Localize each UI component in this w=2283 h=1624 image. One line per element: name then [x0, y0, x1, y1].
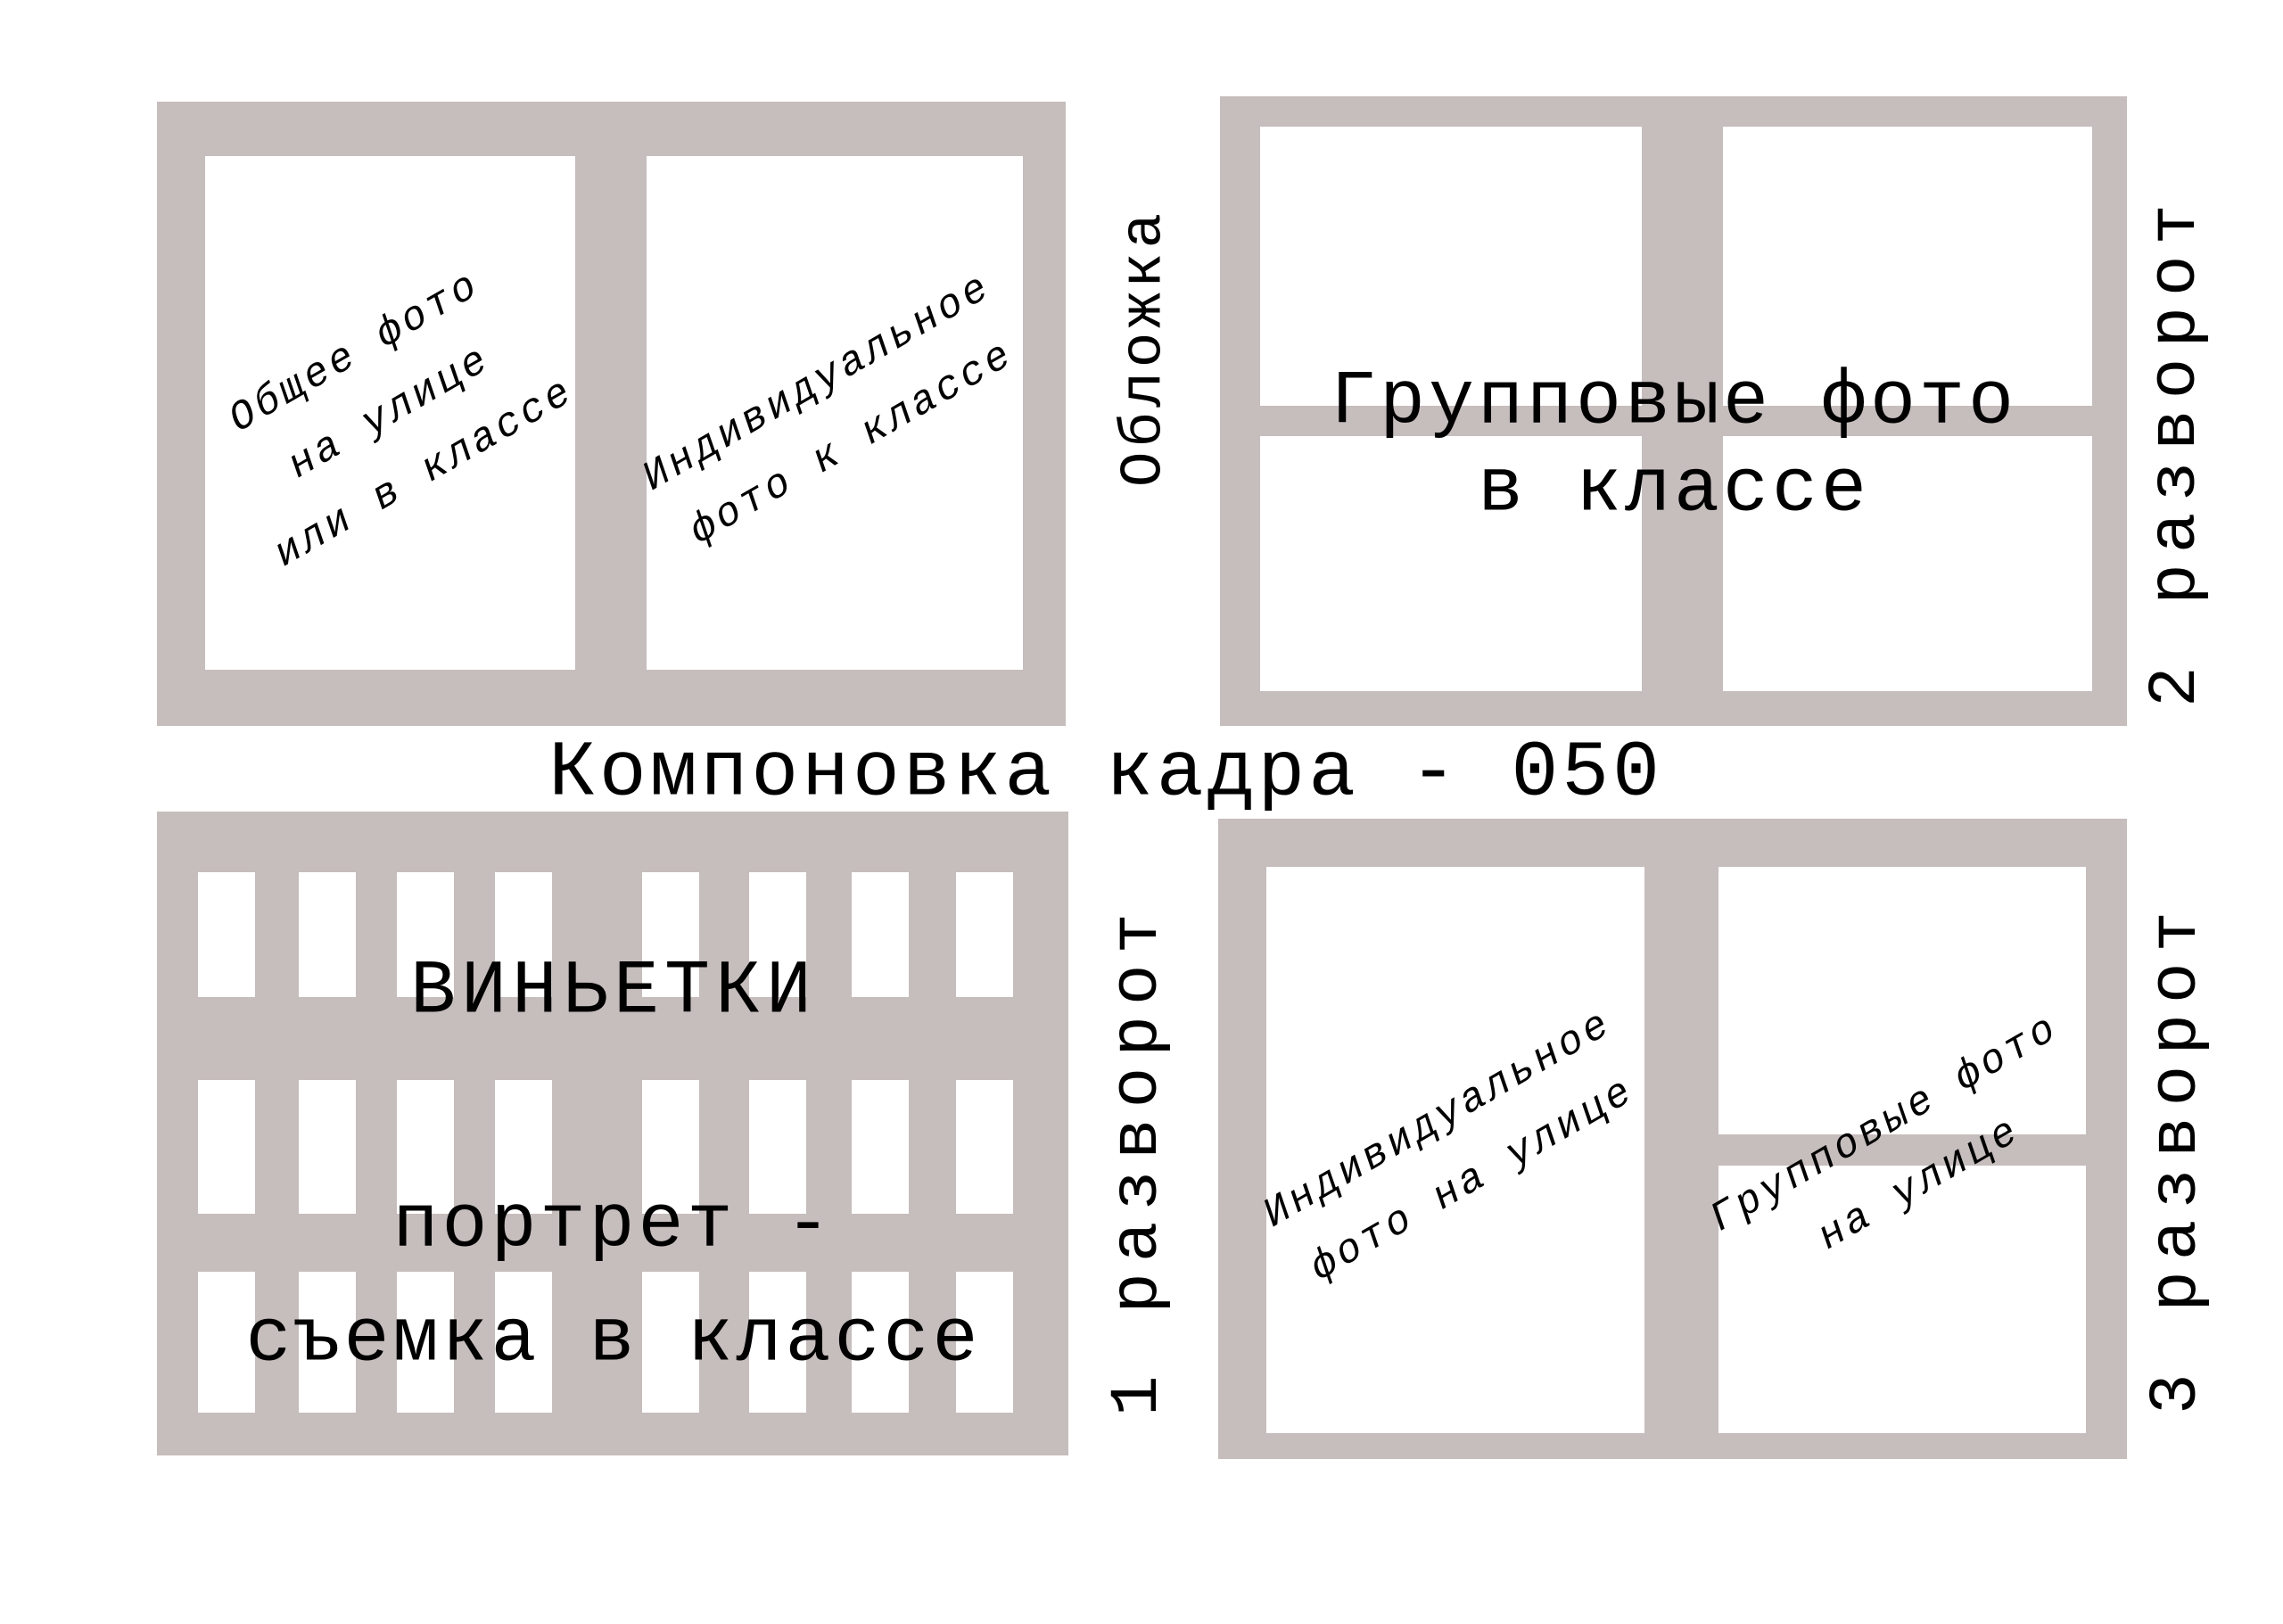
caption-line: портрет - [245, 1169, 981, 1283]
caption-line: в классе [1331, 446, 2017, 533]
spread2-label: 2 разворот [2138, 194, 2214, 707]
vignette-cell [956, 872, 1013, 997]
spread3-label: 3 разворот [2139, 901, 2215, 1414]
spread2-caption: Групповые фото в классе [1331, 359, 2017, 533]
spread1-panel: ВИНЬЕТКИ портрет - съемка в классе [157, 812, 1068, 1455]
spread1-heading: ВИНЬЕТКИ [410, 949, 817, 1035]
spread1-label: 1 разворот [1100, 903, 1176, 1416]
vignette-cell [852, 872, 909, 997]
spread1-caption: портрет - съемка в классе [245, 1169, 981, 1397]
spread3-panel: Индивидуальное фото на улице Групповые ф… [1218, 819, 2127, 1459]
caption-line: Групповые фото [1331, 359, 2017, 446]
cover-panel: Общее фото на улице или в классе Индивид… [157, 102, 1066, 726]
vignette-cell [299, 872, 356, 997]
caption-line: съемка в классе [245, 1282, 981, 1397]
scheme-title: Компоновка кадра - 050 [548, 730, 1663, 819]
cover-label: Обложка [1111, 209, 1178, 487]
spread2-panel: Групповые фото в классе [1220, 96, 2127, 726]
vignette-cell [198, 872, 255, 997]
layout-scheme: Общее фото на улице или в классе Индивид… [0, 0, 2283, 1624]
